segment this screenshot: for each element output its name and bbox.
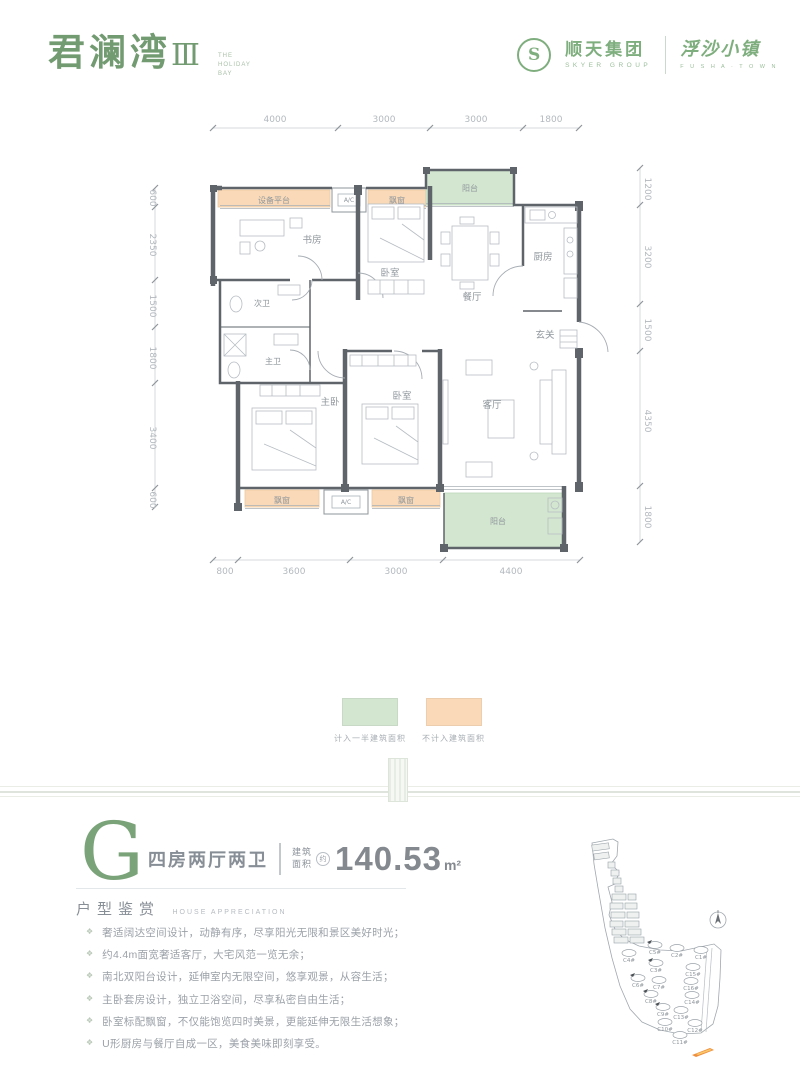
feature-list: ❖ 奢适阔达空间设计，动静有序，尽享阳光无限和景区美好时光； ❖ 约4.4m面宽… <box>86 926 418 1059</box>
feature-text: U形厨房与餐厅自成一区，美食美味即刻享受。 <box>102 1037 326 1052</box>
area-legend: 计入一半建筑面积 不计入建筑面积 <box>334 698 485 744</box>
project-logo: 君澜湾Ⅲ <box>48 34 200 71</box>
svg-text:1500: 1500 <box>642 319 652 342</box>
svg-text:C7#: C7# <box>653 985 665 991</box>
villa-buildings: C5# C2# C1# C4# C3# C15# C6# C7# C16# C8… <box>622 940 708 1046</box>
svg-text:卧室: 卧室 <box>392 390 411 402</box>
brand-divider <box>665 36 666 74</box>
svg-text:C12#: C12# <box>687 1028 703 1034</box>
svg-text:1800: 1800 <box>642 506 652 529</box>
svg-text:C4#: C4# <box>623 958 635 964</box>
diamond-bullet-icon: ❖ <box>86 926 93 939</box>
unit-summary: 四房两厅两卫 建筑 面积 约 140.53 m² <box>148 842 461 875</box>
phase-numeral: Ⅲ <box>171 38 200 73</box>
svg-text:600: 600 <box>147 189 157 206</box>
list-item: ❖ 南北双阳台设计，延伸室内无限空间，悠享观景，从容生活； <box>86 970 418 985</box>
svg-text:阳台: 阳台 <box>490 516 506 526</box>
svg-text:C2#: C2# <box>671 953 683 959</box>
svg-text:1800: 1800 <box>147 347 157 370</box>
orange-swatch-icon <box>426 698 482 726</box>
diamond-bullet-icon: ❖ <box>86 1015 93 1028</box>
svg-text:C10#: C10# <box>657 1027 673 1033</box>
legend-label: 计入一半建筑面积 <box>334 733 406 744</box>
compass-icon <box>710 910 726 928</box>
unit-divider-bar <box>279 843 281 875</box>
svg-text:主卫: 主卫 <box>265 356 281 366</box>
svg-text:A/C: A/C <box>341 499 351 506</box>
approx-mark-icon: 约 <box>316 852 330 866</box>
svg-text:飘窗: 飘窗 <box>274 495 290 505</box>
svg-text:1500: 1500 <box>147 295 157 318</box>
list-item: ❖ 约4.4m面宽奢适客厅，大宅风范一览无余； <box>86 948 418 963</box>
svg-text:餐厅: 餐厅 <box>462 291 482 303</box>
appreciation-heading: 户型鉴赏 HOUSE APPRECIATION <box>76 888 406 919</box>
svg-text:3000: 3000 <box>373 115 396 125</box>
svg-text:3400: 3400 <box>147 427 157 450</box>
location-highlight-icon <box>692 1048 714 1057</box>
svg-text:3600: 3600 <box>283 567 306 577</box>
svg-text:600: 600 <box>147 491 157 508</box>
row-buildings <box>592 843 644 943</box>
svg-text:1200: 1200 <box>642 178 652 201</box>
group-subtitle: SKYER GROUP <box>565 62 651 69</box>
diamond-bullet-icon: ❖ <box>86 1037 93 1050</box>
svg-text:A/C: A/C <box>344 197 354 204</box>
pillar-ornament-icon <box>388 758 408 802</box>
svg-text:C15#: C15# <box>685 972 701 978</box>
svg-text:3200: 3200 <box>642 246 652 269</box>
svg-text:3000: 3000 <box>385 567 408 577</box>
svg-text:设备平台: 设备平台 <box>258 195 290 205</box>
svg-text:4400: 4400 <box>500 567 523 577</box>
svg-text:C13#: C13# <box>673 1015 689 1021</box>
svg-text:2350: 2350 <box>147 234 157 257</box>
unit-type-letter: G <box>80 812 144 892</box>
town-subtitle: F U S H A · T O W N <box>680 64 778 70</box>
svg-text:800: 800 <box>216 567 233 577</box>
svg-text:C11#: C11# <box>672 1040 688 1046</box>
area-label: 建筑 面积 <box>292 847 312 870</box>
svg-text:4350: 4350 <box>642 410 652 433</box>
list-item: ❖ 卧室标配飘窗，不仅能饱览四时美景，更能延伸无限生活想象； <box>86 1015 418 1030</box>
group-brand: 顺天集团 SKYER GROUP <box>565 41 651 70</box>
group-name: 顺天集团 <box>565 41 651 60</box>
brand-logos: S 顺天集团 SKYER GROUP 浮沙小镇 F U S H A · T O … <box>517 36 778 74</box>
area-unit: m² <box>444 857 461 875</box>
list-item: ❖ U形厨房与餐厅自成一区，美食美味即刻享受。 <box>86 1037 418 1052</box>
svg-text:厨房: 厨房 <box>533 251 552 263</box>
svg-text:书房: 书房 <box>302 234 321 246</box>
svg-text:飘窗: 飘窗 <box>398 495 414 505</box>
green-swatch-icon <box>342 698 398 726</box>
brochure-page: 君澜湾Ⅲ THE HOLIDAY BAY S 顺天集团 SKYER GROUP … <box>0 0 800 1085</box>
feature-text: 南北双阳台设计，延伸室内无限空间，悠享观景，从容生活； <box>102 970 394 985</box>
svg-text:1800: 1800 <box>540 115 563 125</box>
svg-text:C9#: C9# <box>657 1012 669 1018</box>
svg-text:C1#: C1# <box>695 955 707 961</box>
town-brand: 浮沙小镇 F U S H A · T O W N <box>680 40 778 70</box>
legend-item-excluded-area: 不计入建筑面积 <box>422 698 485 744</box>
svg-text:C14#: C14# <box>684 1000 700 1006</box>
feature-text: 约4.4m面宽奢适客厅，大宅风范一览无余； <box>102 948 310 963</box>
town-name: 浮沙小镇 <box>680 40 778 60</box>
svg-text:C6#: C6# <box>632 983 644 989</box>
feature-text: 卧室标配飘窗，不仅能饱览四时美景，更能延伸无限生活想象； <box>102 1015 404 1030</box>
floorplan-diagram: 4000 3000 3000 1800 800 3600 3000 4400 6… <box>140 108 670 588</box>
svg-text:C3#: C3# <box>650 968 662 974</box>
appreciation-subtitle: HOUSE APPRECIATION <box>172 909 286 916</box>
siteplan-map: C5# C2# C1# C4# C3# C15# C6# C7# C16# C8… <box>568 828 798 1063</box>
area-value: 140.53 <box>335 842 442 875</box>
svg-text:卧室: 卧室 <box>380 267 399 279</box>
diamond-bullet-icon: ❖ <box>86 948 93 961</box>
svg-text:次卫: 次卫 <box>254 298 270 308</box>
svg-text:4000: 4000 <box>264 115 287 125</box>
dimension-lines: 4000 3000 3000 1800 800 3600 3000 4400 6… <box>147 115 652 577</box>
svg-text:C16#: C16# <box>683 986 699 992</box>
legend-item-half-area: 计入一半建筑面积 <box>334 698 406 744</box>
svg-text:玄关: 玄关 <box>535 329 555 341</box>
appreciation-title: 户型鉴赏 <box>76 898 160 919</box>
project-logo-tagline: THE HOLIDAY BAY <box>218 52 260 79</box>
unit-layout-name: 四房两厅两卫 <box>148 846 268 872</box>
project-logo-text: 君澜湾 <box>48 30 171 74</box>
svg-text:主卧: 主卧 <box>320 396 340 408</box>
legend-label: 不计入建筑面积 <box>422 733 485 744</box>
svg-text:客厅: 客厅 <box>482 399 502 411</box>
doors <box>290 256 608 379</box>
svg-text:飘窗: 飘窗 <box>389 195 405 205</box>
diamond-bullet-icon: ❖ <box>86 970 93 983</box>
svg-text:阳台: 阳台 <box>462 183 478 193</box>
svg-text:C5#: C5# <box>649 950 661 956</box>
list-item: ❖ 主卧套房设计，独立卫浴空间，尽享私密自由生活； <box>86 993 418 1008</box>
skyer-logo-icon: S <box>517 38 551 72</box>
feature-text: 主卧套房设计，独立卫浴空间，尽享私密自由生活； <box>102 993 350 1008</box>
list-item: ❖ 奢适阔达空间设计，动静有序，尽享阳光无限和景区美好时光； <box>86 926 418 941</box>
feature-text: 奢适阔达空间设计，动静有序，尽享阳光无限和景区美好时光； <box>102 926 404 941</box>
svg-text:3000: 3000 <box>465 115 488 125</box>
diamond-bullet-icon: ❖ <box>86 993 93 1006</box>
